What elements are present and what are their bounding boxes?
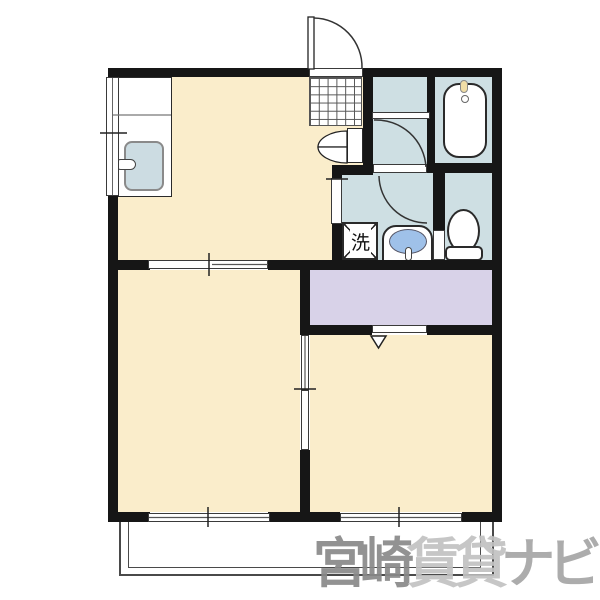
wall-closet-bottom-left (300, 325, 372, 335)
washbasin-faucet (405, 247, 412, 261)
window-south-west (148, 513, 270, 522)
wall-top-left (108, 68, 310, 77)
sliding-door-bedrooms-panel (301, 390, 309, 450)
wall-bath-left (427, 68, 435, 173)
entrance-door-arc (314, 18, 362, 68)
genkan-tile-grid (309, 77, 362, 126)
toilet-base (445, 246, 483, 261)
wall-washroom-toilet (433, 173, 445, 230)
wall-bottom-b (268, 512, 340, 522)
washing-machine-label: 洗 (350, 227, 371, 256)
bathtub-faucet (460, 80, 468, 93)
wall-hall-washroom-lower (332, 224, 342, 260)
watermark-tertiary: ナビ (501, 534, 595, 594)
watermark: 宮崎賃貸ナビ (313, 537, 595, 591)
room-bedroom-east (310, 335, 492, 512)
wall-left-lower (108, 196, 118, 522)
wall-closet-left (300, 260, 310, 335)
window-west (106, 77, 119, 196)
closet (310, 270, 492, 325)
wall-mid-left (108, 260, 150, 270)
bathtub-knob (461, 95, 469, 103)
wall-bottom-c (462, 512, 502, 522)
closet-opening (372, 325, 427, 333)
entrance-threshold (309, 68, 363, 77)
watermark-primary: 宮崎 (313, 534, 407, 594)
shoe-cabinet (347, 128, 363, 163)
room-bedroom-west (118, 270, 300, 512)
wall-bottom-a (108, 512, 150, 522)
wall-bedroom-divider-lower (300, 450, 310, 512)
bath-doorway (373, 164, 427, 173)
toilet-doorway (433, 230, 445, 260)
wall-genkan-changing (363, 68, 373, 175)
entrance-door-leaf (308, 17, 314, 69)
washing-machine-pan: 洗 (342, 222, 378, 260)
watermark-secondary: 賃貸 (407, 534, 501, 594)
floorplan-image: 洗 (0, 0, 600, 600)
changing-door-leaf (372, 112, 430, 119)
wall-hall-washroom-upper (332, 165, 342, 178)
washroom-door (331, 178, 342, 224)
wall-closet-bottom-right (427, 325, 502, 335)
window-south-east (340, 513, 462, 522)
sliding-door-hall-bedroom (148, 260, 268, 269)
room-changing (373, 77, 427, 165)
wall-bath-bottom (427, 163, 502, 173)
sliding-door-bedrooms-track (301, 335, 309, 390)
wall-right (492, 68, 502, 522)
